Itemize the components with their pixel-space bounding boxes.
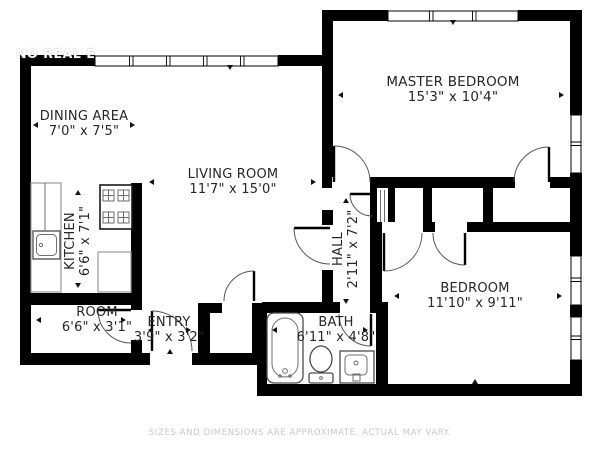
disclaimer-text: SIZES AND DIMENSIONS ARE APPROXIMATE, AC… (0, 428, 600, 438)
room-dims: 7'0" x 7'5" (40, 124, 129, 139)
room-label-living-room: LIVING ROOM 11'7" x 15'0" (188, 167, 279, 197)
hall-living-door (294, 228, 330, 264)
room-dims: 3'9" x 3'2" (134, 330, 204, 345)
window-bedroom-right-1 (571, 256, 581, 305)
room-name: ENTRY (134, 315, 204, 330)
stove-icon (100, 185, 132, 229)
dimension-marker (450, 20, 456, 25)
window-master-top (388, 11, 518, 21)
window-living-dining (95, 56, 278, 66)
room-name: ROOM (62, 305, 132, 320)
room-dims: 15'3" x 10'4" (386, 90, 519, 105)
dimension-marker (75, 283, 81, 288)
vanity-sink-icon (340, 351, 374, 383)
room-label-kitchen: KITCHEN 6'6" x 7'1" (63, 206, 93, 276)
dimension-marker (472, 379, 478, 384)
dimension-marker (559, 92, 564, 98)
dimension-marker (394, 293, 399, 299)
dimension-marker (557, 293, 562, 299)
dimension-marker (36, 317, 41, 323)
room-label-hall: HALL 2'11" x 7'2" (331, 210, 361, 289)
room-label-bedroom: BEDROOM 11'10" x 9'11" (427, 281, 523, 311)
watermark: NO REAL E (16, 46, 100, 61)
living-room-closet-door (224, 271, 254, 301)
dimension-marker (311, 179, 316, 185)
room-dims: 11'10" x 9'11" (427, 296, 523, 311)
kitchen-sink-icon (33, 231, 60, 259)
floor-plan: DINING AREA 7'0" x 7'5" LIVING ROOM 11'7… (0, 0, 600, 450)
room-label-room: ROOM 6'6" x 3'1" (62, 305, 132, 335)
room-name: DINING AREA (40, 109, 129, 124)
dimension-marker (338, 92, 343, 98)
room-name: KITCHEN (63, 206, 78, 276)
dimension-marker (75, 190, 81, 195)
room-dims: 6'6" x 7'1" (78, 206, 93, 276)
dimension-marker (343, 299, 349, 304)
room-dims: 2'11" x 7'2" (346, 210, 361, 289)
room-dims: 6'11" x 4'8" (297, 330, 376, 345)
room-name: MASTER BEDROOM (386, 75, 519, 90)
room-label-dining-area: DINING AREA 7'0" x 7'5" (40, 109, 129, 139)
bedroom-door (384, 233, 422, 271)
room-dims: 11'7" x 15'0" (188, 182, 279, 197)
dimension-marker (149, 179, 154, 185)
toilet-icon (309, 346, 333, 383)
dimension-marker (130, 122, 135, 128)
room-label-bath: BATH 6'11" x 4'8" (297, 315, 376, 345)
dimension-marker (227, 65, 233, 70)
window-master-right (571, 115, 581, 173)
room-label-entry: ENTRY 3'9" x 3'2" (134, 315, 204, 345)
room-name: LIVING ROOM (188, 167, 279, 182)
room-label-master-bedroom: MASTER BEDROOM 15'3" x 10'4" (386, 75, 519, 105)
dimension-marker (33, 122, 38, 128)
room-name: BEDROOM (427, 281, 523, 296)
window-bedroom-right-2 (571, 317, 581, 360)
bedroom-closet-door (433, 233, 465, 265)
dimension-marker (167, 349, 173, 354)
closet-shelves (381, 190, 385, 222)
master-closet-door (514, 147, 549, 182)
room-name: HALL (331, 210, 346, 289)
room-dims: 6'6" x 3'1" (62, 320, 132, 335)
dimension-marker (343, 198, 349, 203)
room-name: BATH (297, 315, 376, 330)
master-bedroom-door (334, 146, 370, 182)
